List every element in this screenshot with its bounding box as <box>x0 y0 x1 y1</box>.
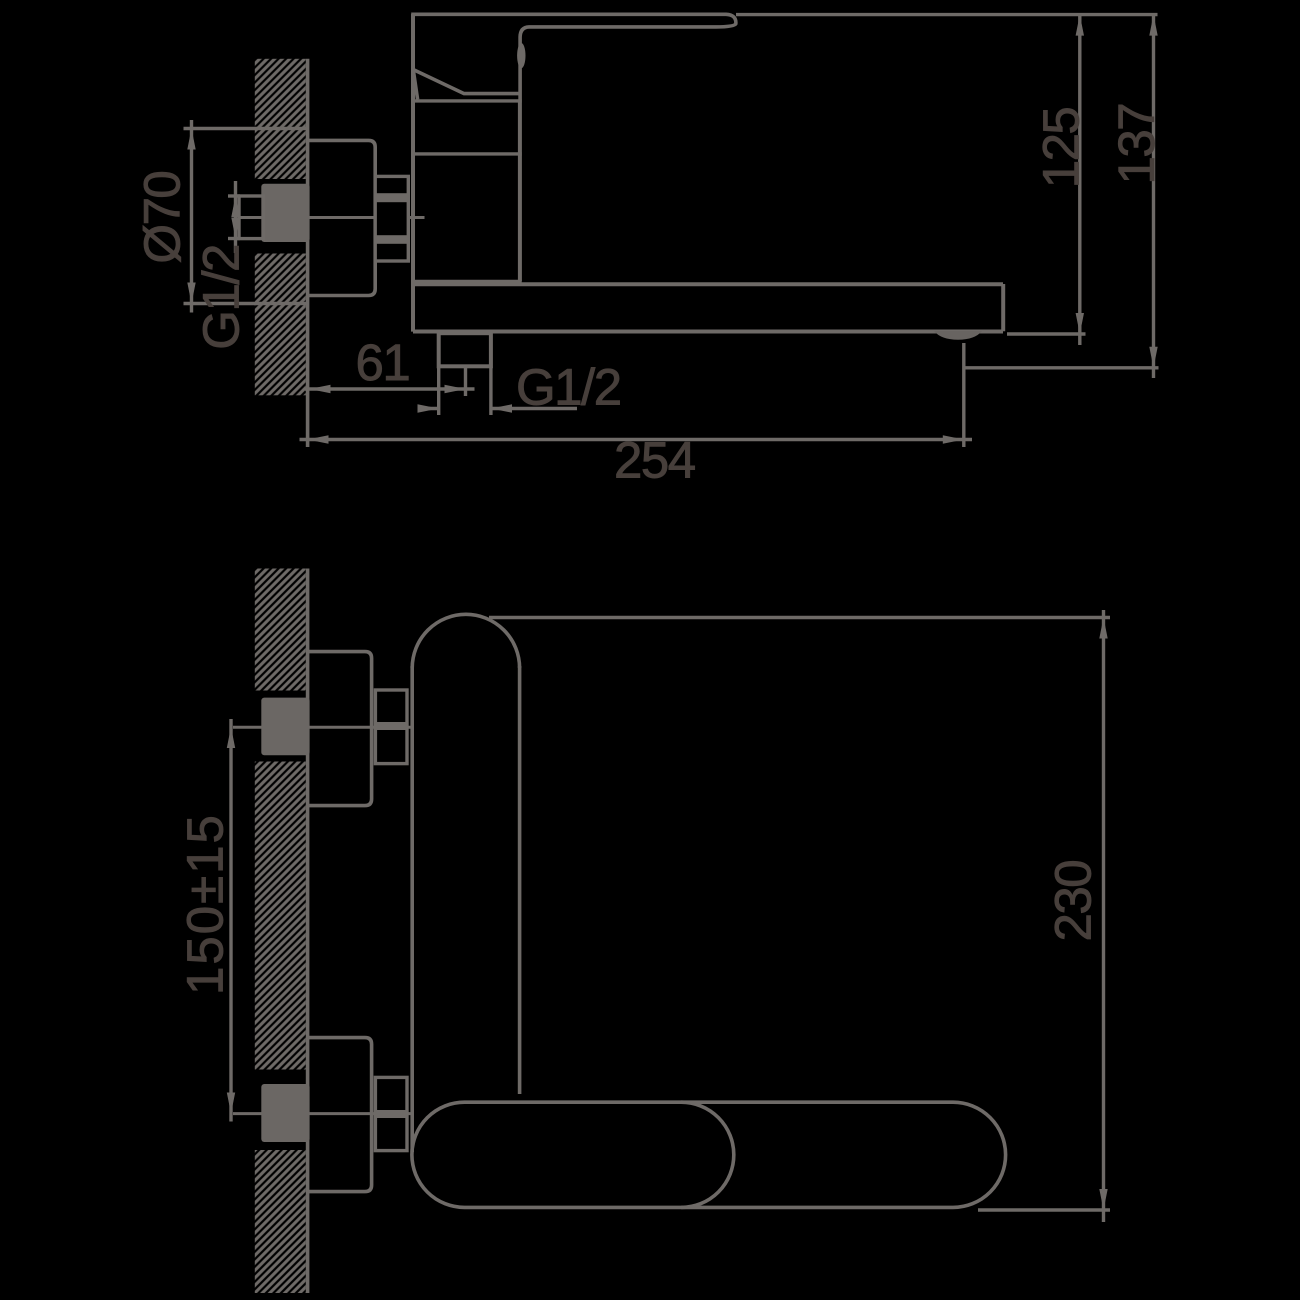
svg-text:Ø70: Ø70 <box>134 172 191 264</box>
svg-text:230: 230 <box>1045 861 1102 942</box>
svg-text:G1/2: G1/2 <box>516 359 621 416</box>
svg-text:137: 137 <box>1108 104 1165 185</box>
svg-text:125: 125 <box>1033 108 1090 189</box>
svg-text:61: 61 <box>356 334 410 391</box>
svg-text:G1/2: G1/2 <box>193 245 250 350</box>
svg-text:254: 254 <box>614 432 695 489</box>
svg-text:150±15: 150±15 <box>177 813 234 995</box>
